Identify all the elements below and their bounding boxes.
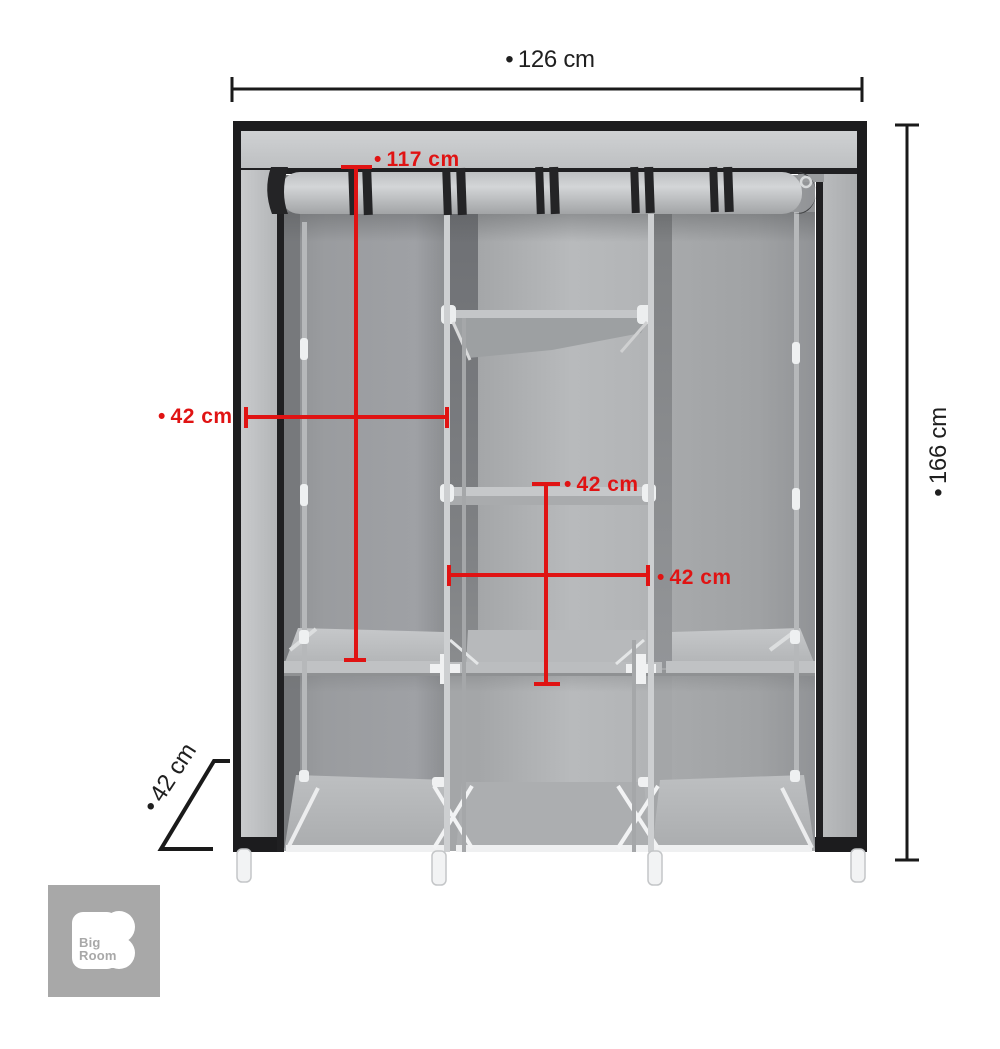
- svg-text:• 117 cm: • 117 cm: [374, 148, 460, 171]
- svg-text:Room: Room: [79, 948, 117, 963]
- svg-text:• 166 cm: • 166 cm: [925, 407, 952, 497]
- svg-text:• 126 cm: • 126 cm: [505, 46, 595, 73]
- svg-text:• 42 cm: • 42 cm: [564, 473, 639, 496]
- svg-text:• 42 cm: • 42 cm: [657, 566, 732, 589]
- svg-text:• 42 cm: • 42 cm: [158, 405, 233, 428]
